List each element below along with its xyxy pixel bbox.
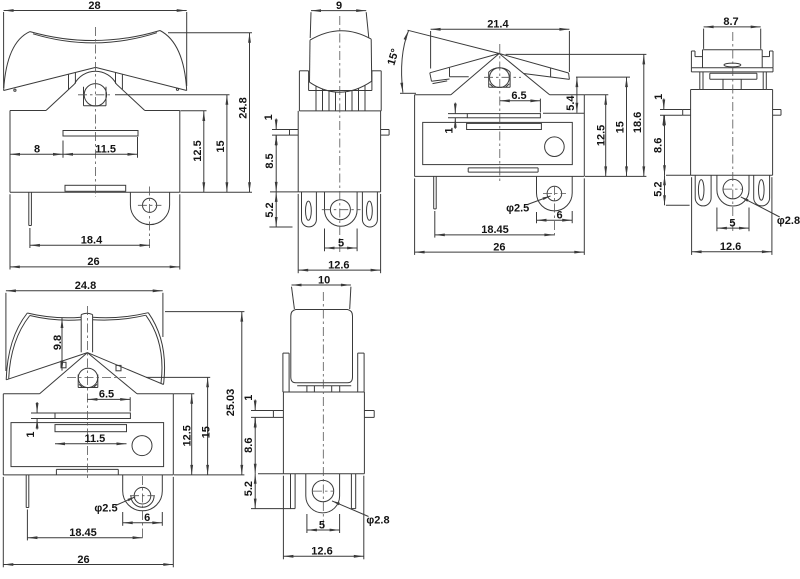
svg-text:8.5: 8.5 [264,153,276,168]
svg-text:φ2.8: φ2.8 [777,215,800,227]
svg-text:5: 5 [338,237,344,249]
svg-text:6: 6 [556,210,562,222]
svg-text:15: 15 [200,426,212,438]
svg-text:1: 1 [444,127,456,133]
svg-text:8.7: 8.7 [723,16,738,28]
svg-text:6.5: 6.5 [99,389,114,401]
svg-text:28: 28 [88,0,100,12]
svg-text:18.4: 18.4 [81,235,103,247]
svg-text:26: 26 [87,256,99,268]
svg-text:12.5: 12.5 [192,140,204,161]
svg-text:5.2: 5.2 [264,202,276,217]
svg-text:9.8: 9.8 [52,335,64,350]
svg-text:24.8: 24.8 [75,280,96,292]
svg-text:12.6: 12.6 [328,259,349,271]
svg-text:12.5: 12.5 [596,125,608,146]
svg-text:26: 26 [493,241,505,253]
svg-text:9: 9 [336,0,342,12]
svg-text:12.5: 12.5 [182,425,194,446]
svg-text:5.4: 5.4 [565,95,577,111]
svg-text:1: 1 [25,431,37,437]
svg-text:12.6: 12.6 [720,241,741,253]
svg-text:8.6: 8.6 [653,138,665,153]
svg-text:24.8: 24.8 [238,97,250,118]
svg-text:5.2: 5.2 [653,181,665,196]
svg-text:5.2: 5.2 [243,481,255,496]
svg-text:5: 5 [729,217,735,229]
svg-text:15: 15 [215,140,227,152]
svg-text:25.03: 25.03 [225,389,237,417]
svg-text:1: 1 [243,395,255,401]
svg-text:8.6: 8.6 [243,438,255,453]
svg-text:18.45: 18.45 [481,224,509,236]
svg-text:11.5: 11.5 [95,144,116,156]
svg-text:21.4: 21.4 [487,19,509,31]
svg-text:15: 15 [615,121,627,133]
svg-text:11.5: 11.5 [84,433,105,445]
svg-text:6.5: 6.5 [511,90,526,102]
svg-text:φ2.5: φ2.5 [506,203,529,215]
svg-text:φ2.8: φ2.8 [366,515,389,527]
svg-text:26: 26 [77,554,89,566]
svg-text:18.45: 18.45 [69,527,97,539]
svg-text:6: 6 [144,512,150,524]
svg-text:8: 8 [34,144,40,156]
svg-text:10: 10 [318,274,330,286]
svg-text:1: 1 [263,114,275,120]
svg-text:18.6: 18.6 [632,112,644,133]
svg-text:5: 5 [319,519,325,531]
svg-text:φ2.5: φ2.5 [94,503,117,515]
svg-text:1: 1 [653,94,665,100]
svg-text:12.6: 12.6 [311,546,332,558]
